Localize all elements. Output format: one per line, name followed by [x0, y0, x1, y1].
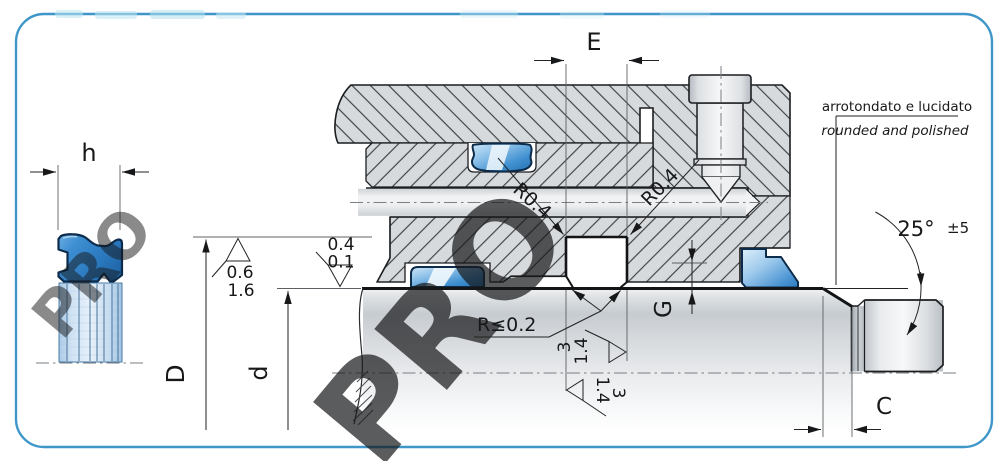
surface-finish-rod: 0.4 0.1 [316, 235, 355, 287]
dim-label-C: C [876, 394, 892, 420]
watermark-text: PRO [18, 193, 168, 352]
svg-text:0.6: 0.6 [226, 263, 253, 283]
dim-label-e: E [586, 28, 601, 56]
surface-finish-housing: 0.6 1.6 [212, 239, 255, 302]
rod-end-cylinder [865, 300, 944, 372]
dim-label-D: D [161, 364, 190, 383]
angle-tolerance-label: ±5 [947, 219, 969, 237]
drawing-canvas: h [0, 0, 1000, 461]
svg-text:0.1: 0.1 [327, 253, 354, 273]
dim-label-h: h [81, 139, 96, 167]
radius-label-bottom: R≤0.2 [477, 314, 536, 336]
dim-label-G: G [651, 300, 677, 318]
angle-label: 25° [897, 217, 934, 241]
dim-label-d: d [245, 365, 273, 380]
wiper-seal [742, 249, 798, 288]
wiper-area [740, 248, 798, 288]
seal-installation-drawing: h [0, 0, 1000, 461]
svg-text:1.6: 1.6 [227, 281, 254, 301]
note-italian: arrotondato e lucidato [822, 99, 972, 115]
note-english: rounded and polished [821, 123, 969, 139]
svg-text:3: 3 [608, 388, 628, 399]
svg-text:1.4: 1.4 [572, 337, 592, 364]
